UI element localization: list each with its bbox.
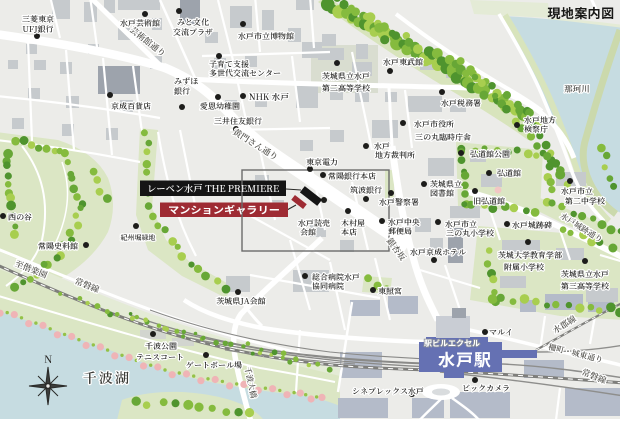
svg-text:銀行: 銀行 xyxy=(173,86,190,97)
svg-text:第三高等学校: 第三高等学校 xyxy=(560,281,609,292)
svg-text:水戸税務署: 水戸税務署 xyxy=(440,98,481,109)
svg-text:本店: 本店 xyxy=(340,227,357,238)
svg-text:千波湖: 千波湖 xyxy=(83,368,131,388)
svg-text:マンションギャラリー: マンションギャラリー xyxy=(168,202,280,217)
svg-text:那珂川: 那珂川 xyxy=(564,83,590,95)
svg-text:紀州堀緑地: 紀州堀緑地 xyxy=(121,233,157,243)
svg-text:弘道館: 弘道館 xyxy=(497,168,521,179)
svg-text:茨城県JA会館: 茨城県JA会館 xyxy=(216,296,265,307)
svg-text:協同病院: 協同病院 xyxy=(312,281,344,292)
svg-text:茨城県立水戸: 茨城県立水戸 xyxy=(561,269,609,280)
svg-text:ビックカメラ: ビックカメラ xyxy=(462,383,510,394)
svg-text:交流プラザ: 交流プラザ xyxy=(172,27,213,38)
svg-text:茨城県立水戸: 茨城県立水戸 xyxy=(322,71,370,82)
svg-text:水戸東武館: 水戸東武館 xyxy=(382,57,423,68)
svg-text:マルイ: マルイ xyxy=(489,327,513,338)
svg-text:附属小学校: 附属小学校 xyxy=(504,262,544,273)
svg-text:京成百貨店: 京成百貨店 xyxy=(111,101,151,112)
svg-text:東京電力: 東京電力 xyxy=(306,157,338,168)
svg-text:水戸城跡碑: 水戸城跡碑 xyxy=(511,220,552,231)
svg-text:東照宮: 東照宮 xyxy=(378,286,402,297)
svg-text:旧弘道館: 旧弘道館 xyxy=(473,196,505,207)
svg-text:テニスコート: テニスコート xyxy=(136,352,184,363)
svg-text:図書館: 図書館 xyxy=(430,188,454,199)
svg-text:検察庁: 検察庁 xyxy=(523,124,548,135)
svg-text:ゲートボール場: ゲートボール場 xyxy=(186,360,242,371)
svg-text:水戸駅: 水戸駅 xyxy=(438,346,492,371)
svg-text:N: N xyxy=(44,351,53,366)
svg-text:水戸警察署: 水戸警察署 xyxy=(378,197,419,208)
svg-text:弘道館公園: 弘道館公園 xyxy=(470,149,510,160)
svg-text:西の谷: 西の谷 xyxy=(8,212,32,223)
svg-text:筑波銀行: 筑波銀行 xyxy=(349,185,382,196)
svg-text:千波公園: 千波公園 xyxy=(144,341,177,352)
svg-text:三の丸小学校: 三の丸小学校 xyxy=(446,228,494,239)
svg-text:UFJ銀行: UFJ銀行 xyxy=(23,24,54,35)
svg-text:地方裁判所: 地方裁判所 xyxy=(375,150,415,161)
svg-text:愛恩幼稚園: 愛恩幼稚園 xyxy=(200,101,240,112)
svg-text:常陽銀行本店: 常陽銀行本店 xyxy=(328,171,376,182)
svg-text:三の丸臨時庁舎: 三の丸臨時庁舎 xyxy=(415,132,471,143)
svg-text:現地案内図: 現地案内図 xyxy=(547,3,614,22)
svg-text:第二高等学校: 第二高等学校 xyxy=(321,83,370,94)
svg-text:水戸市役所: 水戸市役所 xyxy=(413,119,454,130)
svg-text:レーベン水戸 THE PREMIERE: レーベン水戸 THE PREMIERE xyxy=(147,181,279,195)
svg-text:水戸市立博物館: 水戸市立博物館 xyxy=(237,31,294,42)
svg-text:郵便局: 郵便局 xyxy=(388,226,412,237)
svg-text:第二中学校: 第二中学校 xyxy=(564,196,605,207)
svg-text:NHK 水戸: NHK 水戸 xyxy=(249,91,289,103)
svg-text:水戸京成ホテル: 水戸京成ホテル xyxy=(409,247,466,258)
svg-text:多世代交流センター: 多世代交流センター xyxy=(209,68,281,79)
svg-text:会館: 会館 xyxy=(300,227,316,238)
svg-text:シネプレックス水戸: シネプレックス水戸 xyxy=(352,386,424,397)
svg-text:常陽史料館: 常陽史料館 xyxy=(38,241,78,252)
svg-text:茨城大学教育学部: 茨城大学教育学部 xyxy=(498,250,563,261)
